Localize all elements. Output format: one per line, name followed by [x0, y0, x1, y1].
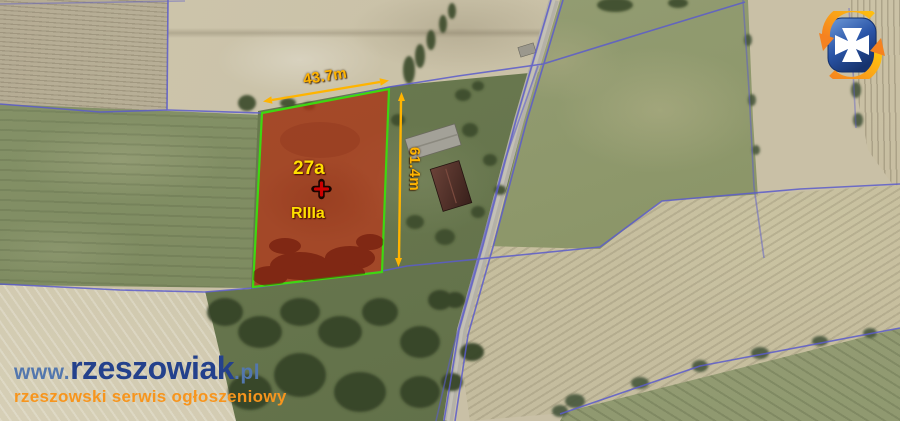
parcel-soil-class-label: RIIIa — [291, 205, 325, 223]
aerial-map: 43.7m 61.4m 27a RIIIa www.rzeszowiak.pl … — [0, 0, 900, 421]
watermark-url-suffix: .pl — [234, 362, 260, 383]
house-building — [430, 161, 472, 212]
parcel-area-label: 27a — [293, 158, 325, 180]
watermark-url-prefix: www. — [14, 362, 70, 383]
watermark: www.rzeszowiak.pl rzeszowski serwis ogło… — [14, 352, 287, 405]
height-dimension-label: 61.4m — [406, 147, 423, 191]
watermark-url-name: rzeszowiak — [70, 352, 234, 384]
watermark-tagline: rzeszowski serwis ogłoszeniowy — [14, 388, 287, 405]
rzeszowiak-crest-logo-icon — [818, 11, 886, 79]
watermark-url: www.rzeszowiak.pl — [14, 352, 287, 384]
